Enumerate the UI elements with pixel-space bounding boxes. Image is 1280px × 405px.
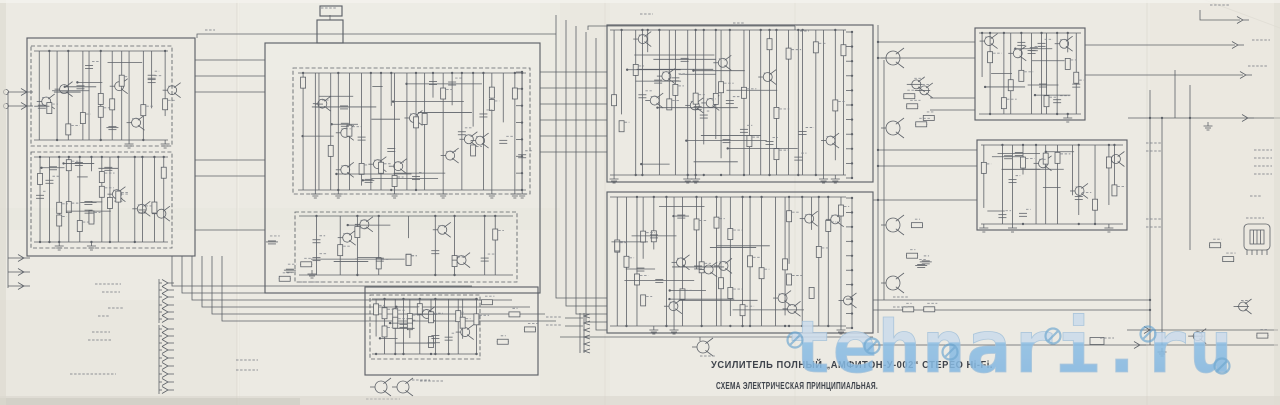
watermark: tehnari.ru <box>788 305 1234 389</box>
schematic-sheet: УСИЛИТЕЛЬ ПОЛНЫЙ „АМФИТОН-У-002“ СТЕРЕО … <box>0 0 1280 405</box>
watermark-text: tehnari.ru <box>788 305 1233 389</box>
schematic-canvas: УСИЛИТЕЛЬ ПОЛНЫЙ „АМФИТОН-У-002“ СТЕРЕО … <box>0 0 1280 405</box>
